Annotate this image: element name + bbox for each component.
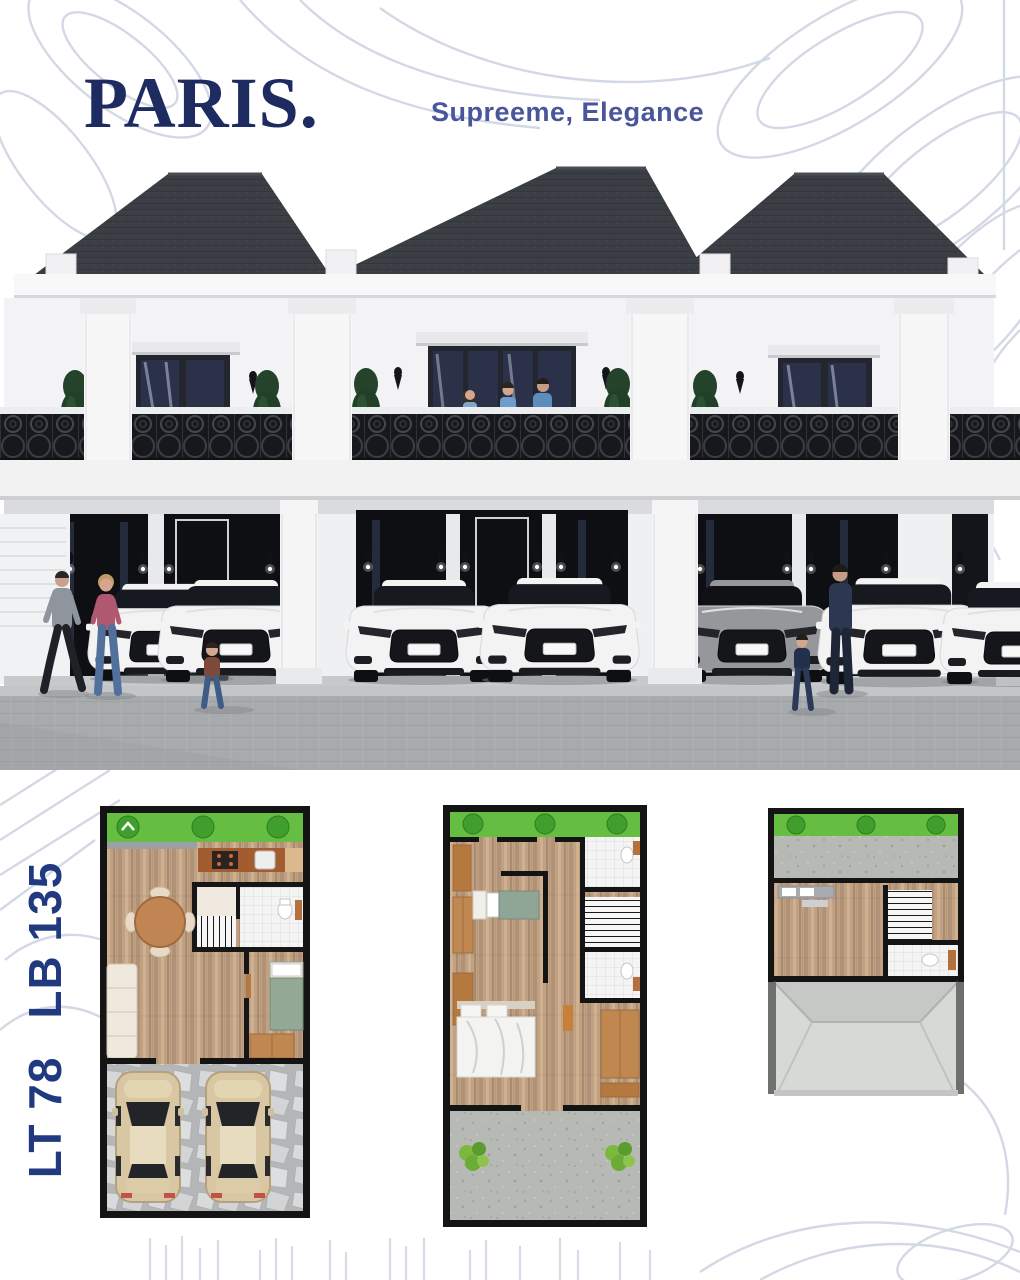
project-tagline: Supreeme, Elegance: [431, 97, 704, 128]
floor-plan-upper: [443, 805, 647, 1227]
bathroom: [192, 882, 303, 952]
terrace: [450, 1105, 640, 1220]
fascia-shadow: [14, 295, 996, 298]
bed-icon: [487, 893, 499, 917]
stairs-icon: [197, 916, 236, 947]
threshold: [107, 842, 197, 849]
balcony-slab: [0, 460, 1020, 500]
terrace: [774, 836, 958, 878]
door-leaf: [246, 974, 251, 998]
kitchen-counter-icon: [198, 848, 303, 872]
hip-roofs: [30, 168, 990, 280]
building-area-label: LB 135: [18, 862, 72, 1019]
sofa-icon: [107, 964, 137, 1058]
floor-plan-roof: [768, 808, 964, 1098]
floor-plan-ground: [100, 806, 310, 1218]
shelf: [295, 900, 302, 920]
stairs-icon: [580, 892, 640, 952]
roof-top-view-icon: [768, 982, 964, 1096]
land-area-label: LT 78: [18, 1057, 72, 1179]
parked-cars: [86, 578, 1020, 687]
car-top-icon: [202, 1072, 274, 1202]
fascia-band: [14, 274, 996, 298]
car-top-icon: [112, 1072, 184, 1202]
balcony-railing: [0, 407, 1020, 462]
bathroom-2: [580, 952, 640, 1003]
rug: [563, 1005, 573, 1031]
bathroom: [580, 837, 640, 892]
street: [0, 686, 1020, 770]
project-title: PARIS.: [84, 62, 319, 145]
spec-labels: LT 78 LB 135: [0, 878, 90, 1162]
stairs-icon: [888, 890, 932, 940]
garden-strip: [774, 814, 958, 836]
building-render: [0, 162, 1020, 770]
bathroom: [888, 945, 958, 976]
nightstand: [473, 891, 486, 919]
carport: [107, 1058, 303, 1211]
wardrobe: [453, 845, 471, 891]
poster-page: PARIS. Supreeme, Elegance: [0, 0, 1020, 1280]
